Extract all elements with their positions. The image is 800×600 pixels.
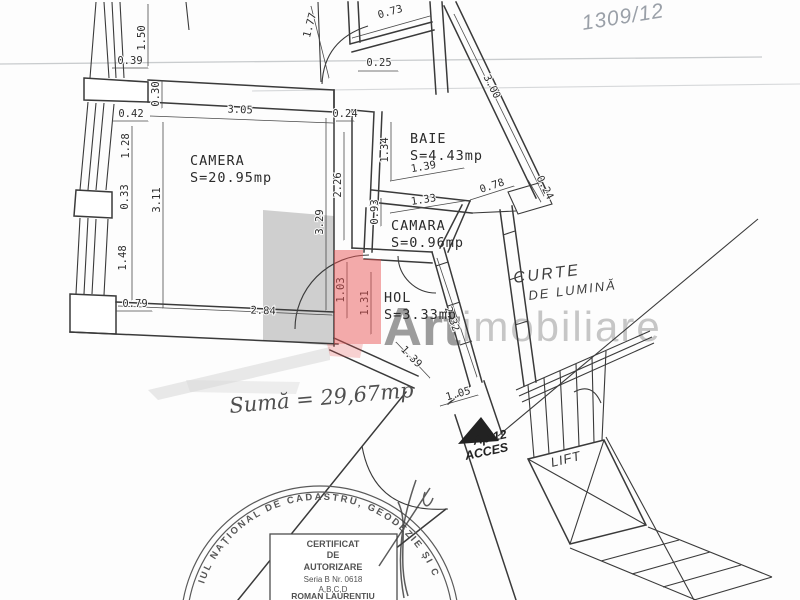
dim-label: 0.30	[150, 81, 162, 106]
dim-label: 1.50	[136, 25, 148, 50]
dim-label: 3.00	[481, 73, 503, 101]
floor-plan-drawing: Art imobiliare	[0, 0, 800, 600]
dim-label: 1.48	[117, 245, 129, 270]
staircase-lift	[458, 219, 772, 600]
dim-label: 1.34	[379, 137, 391, 162]
doc-number: 1309/12	[580, 0, 665, 35]
room-name: CAMARA	[391, 218, 446, 234]
room-name: HOL	[384, 290, 411, 306]
highlight-strip	[327, 344, 363, 358]
stamp-text-line: ROMAN LAURENTIU	[291, 591, 375, 600]
dim-label: 0.42	[118, 108, 143, 120]
room-name: BAIE	[410, 131, 447, 147]
dim-label: 0.79	[122, 298, 147, 310]
room-area: S=4.43mp	[410, 148, 483, 164]
dim-label: 0.24	[534, 174, 556, 202]
access-label-2: ACCES	[463, 440, 510, 463]
dim-label: 0.33	[119, 184, 131, 209]
highlight-rect	[334, 250, 381, 344]
dim-label: 1.28	[120, 133, 132, 158]
stamp-text-line: AUTORIZARE	[304, 562, 363, 572]
stamp-text-line: CERTIFICAT	[307, 539, 360, 549]
room-area: S=3.33mp	[384, 307, 457, 323]
dim-label: 1.77	[301, 11, 319, 39]
room-area: S=0.96mp	[391, 235, 464, 251]
highlight-region	[327, 250, 381, 358]
stamp-text-line: DE	[327, 550, 340, 560]
dim-label: 2.84	[250, 305, 276, 318]
dim-label: 0.24	[332, 108, 357, 120]
floor-plan-page: Art imobiliare	[0, 0, 800, 600]
dim-label: 0.39	[117, 55, 142, 67]
dim-label: 1.33	[410, 192, 437, 208]
room-area: S=20.95mp	[190, 170, 272, 186]
dim-label: 3.11	[151, 187, 163, 212]
lift-label: LIFT	[549, 448, 582, 470]
watermark-brand-light: imobiliare	[462, 303, 662, 350]
dim-label: 3.29	[314, 209, 326, 234]
dim-label: 3.05	[227, 104, 253, 117]
dim-label: 0.93	[369, 199, 381, 224]
dim-label: 2.26	[332, 172, 344, 197]
stamp-text-line: Seria B Nr. 0618	[304, 575, 363, 584]
certification-stamp: IUL NAȚIONAL DE CADASTRU, GEODEZIE ȘI C …	[181, 480, 459, 600]
room-name: CAMERA	[190, 153, 245, 169]
dim-label: 0.25	[366, 57, 391, 69]
dim-label: 0.73	[376, 3, 404, 22]
